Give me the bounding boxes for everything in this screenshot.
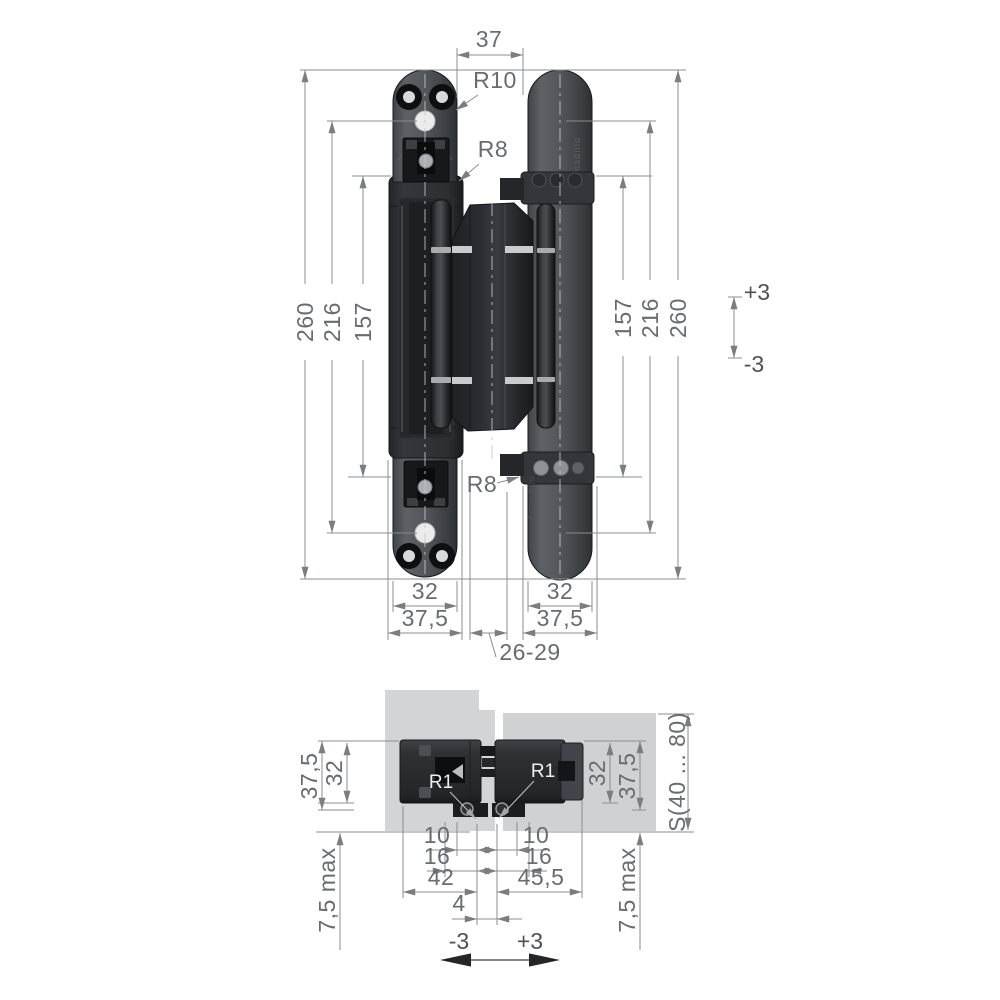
dim-left-depth: 32 (321, 760, 347, 787)
dim-left-42: 42 (428, 864, 455, 890)
dim-right-screws: 216 (637, 298, 663, 338)
cutout-tab (406, 140, 417, 149)
pivot-ring (537, 377, 555, 382)
collar-bolt (572, 462, 584, 474)
case-tab (419, 745, 431, 756)
dim-radius-top: R10 (473, 67, 517, 93)
cutout-tab (434, 140, 445, 149)
dim-radius-shoulder: R8 (478, 136, 508, 162)
dim-right-45: 45,5 (518, 864, 565, 890)
cutout-tab (434, 498, 445, 506)
dim-door-thickness: S(40 ... 80) (664, 712, 690, 832)
screw (436, 91, 448, 103)
dim-left-plate-width: 32 (412, 578, 439, 604)
dim-right-depth: 32 (584, 760, 610, 787)
knuckle-ring (452, 377, 472, 384)
horizontal-adjust-right: +3 (517, 928, 543, 954)
pivot-ring (431, 377, 451, 383)
dim-left-flange: 37,5 (296, 753, 322, 800)
dim-right-overall: 260 (665, 298, 691, 338)
horizontal-adjust-indicator: -3 +3 (440, 928, 560, 967)
dim-radius-shoulder-lower: R8 (467, 471, 497, 497)
dim-left-overall: 260 (292, 302, 318, 342)
collar-bolt (534, 461, 549, 476)
dim-radius-right: R1 (531, 761, 555, 782)
knuckle-ring (505, 246, 533, 253)
vertical-adjust-down: -3 (744, 351, 764, 377)
case-socket (558, 761, 575, 781)
hinge-technical-drawing: Armadillo Armadillo (0, 0, 1000, 1000)
hinge-arm (500, 178, 524, 200)
dim-radius-left: R1 (429, 772, 453, 793)
dim-right-arms: 157 (610, 298, 636, 338)
dim-top-width: 37 (476, 26, 503, 52)
knuckle-ring (505, 377, 533, 384)
dim-left-plate-flange: 37,5 (402, 605, 449, 631)
screw (436, 550, 448, 562)
section-view: R1 R1 (296, 690, 694, 967)
pivot-column (537, 204, 555, 428)
screw (403, 550, 415, 562)
horizontal-adjust-left: -3 (449, 928, 469, 954)
pivot-column (431, 200, 451, 428)
pivot-section-ring (496, 803, 508, 815)
hinge-arm (500, 454, 524, 476)
dim-left-arms: 157 (350, 302, 376, 342)
cutout-tab (407, 498, 418, 506)
dim-left-protrusion: 7,5 max (314, 847, 340, 932)
arrow-left-icon (440, 953, 471, 966)
adjuster-screw (419, 154, 433, 168)
pivot-ring (431, 247, 451, 253)
brand-engraving: Armadillo (526, 476, 536, 520)
front-view: Armadillo Armadillo (292, 26, 770, 665)
pivot-ring (537, 248, 555, 253)
dim-axis-gap: 4 (452, 890, 465, 916)
dim-right-protrusion: 7,5 max (614, 847, 640, 932)
dim-right-plate-flange: 37,5 (537, 605, 584, 631)
collar-bolt (568, 173, 582, 187)
arrow-right-icon (529, 953, 560, 966)
collar-bolt (550, 173, 564, 187)
collar-bolt (532, 173, 546, 187)
dim-gap-range: 26-29 (499, 639, 560, 665)
knuckle-ring (452, 246, 472, 253)
vertical-adjust-up: +3 (744, 279, 770, 305)
dim-right-plate-width: 32 (547, 578, 574, 604)
drawing-canvas: Armadillo Armadillo (0, 0, 1000, 1000)
dim-right-flange: 37,5 (614, 753, 640, 800)
collar-bolt (554, 461, 569, 476)
dim-left-screws: 216 (319, 302, 345, 342)
screw (403, 91, 415, 103)
